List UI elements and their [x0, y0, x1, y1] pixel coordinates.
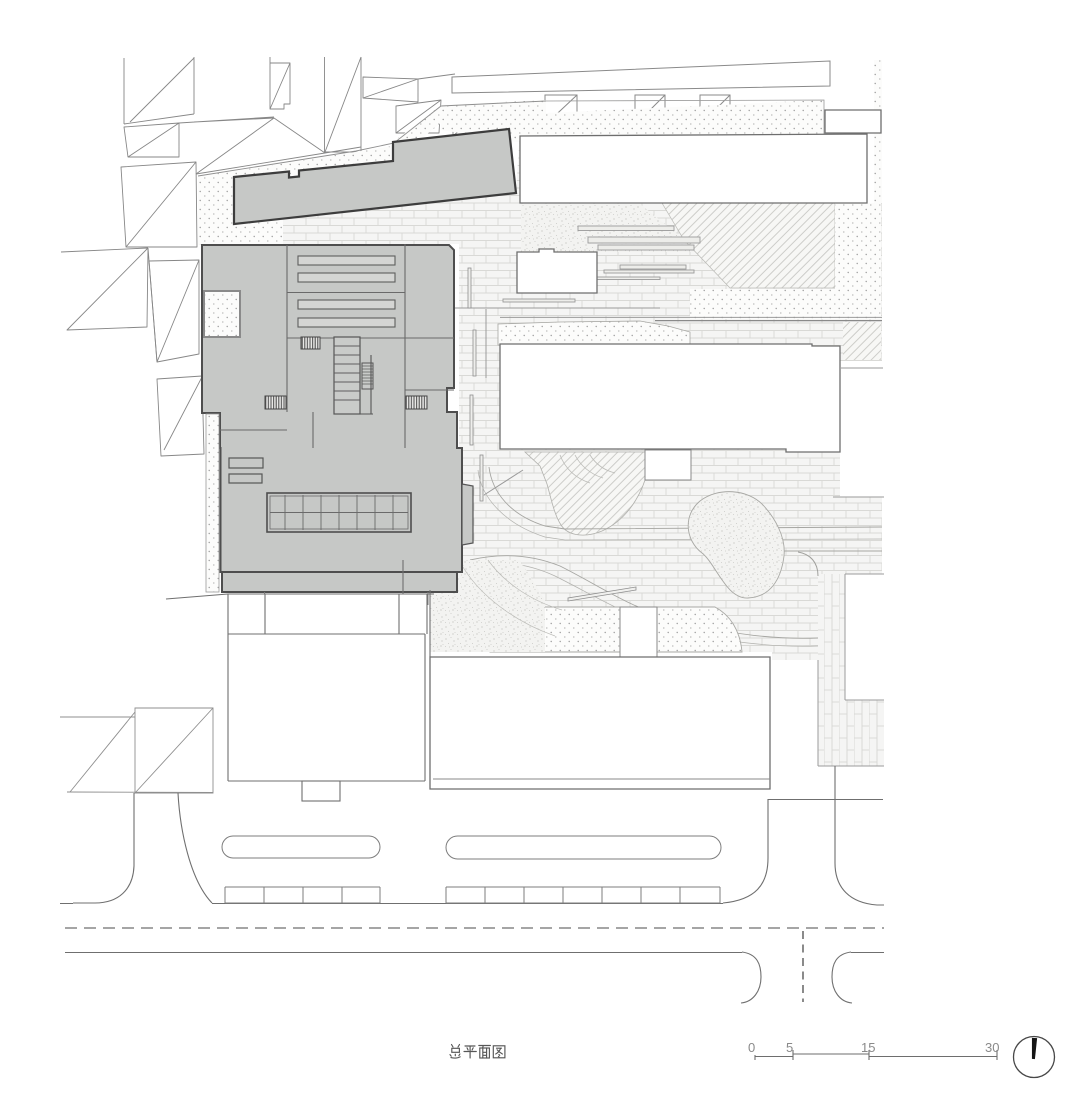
svg-text:15: 15 [861, 1040, 875, 1055]
svg-text:0: 0 [748, 1040, 755, 1055]
svg-text:5: 5 [786, 1040, 793, 1055]
svg-text:30: 30 [985, 1040, 999, 1055]
